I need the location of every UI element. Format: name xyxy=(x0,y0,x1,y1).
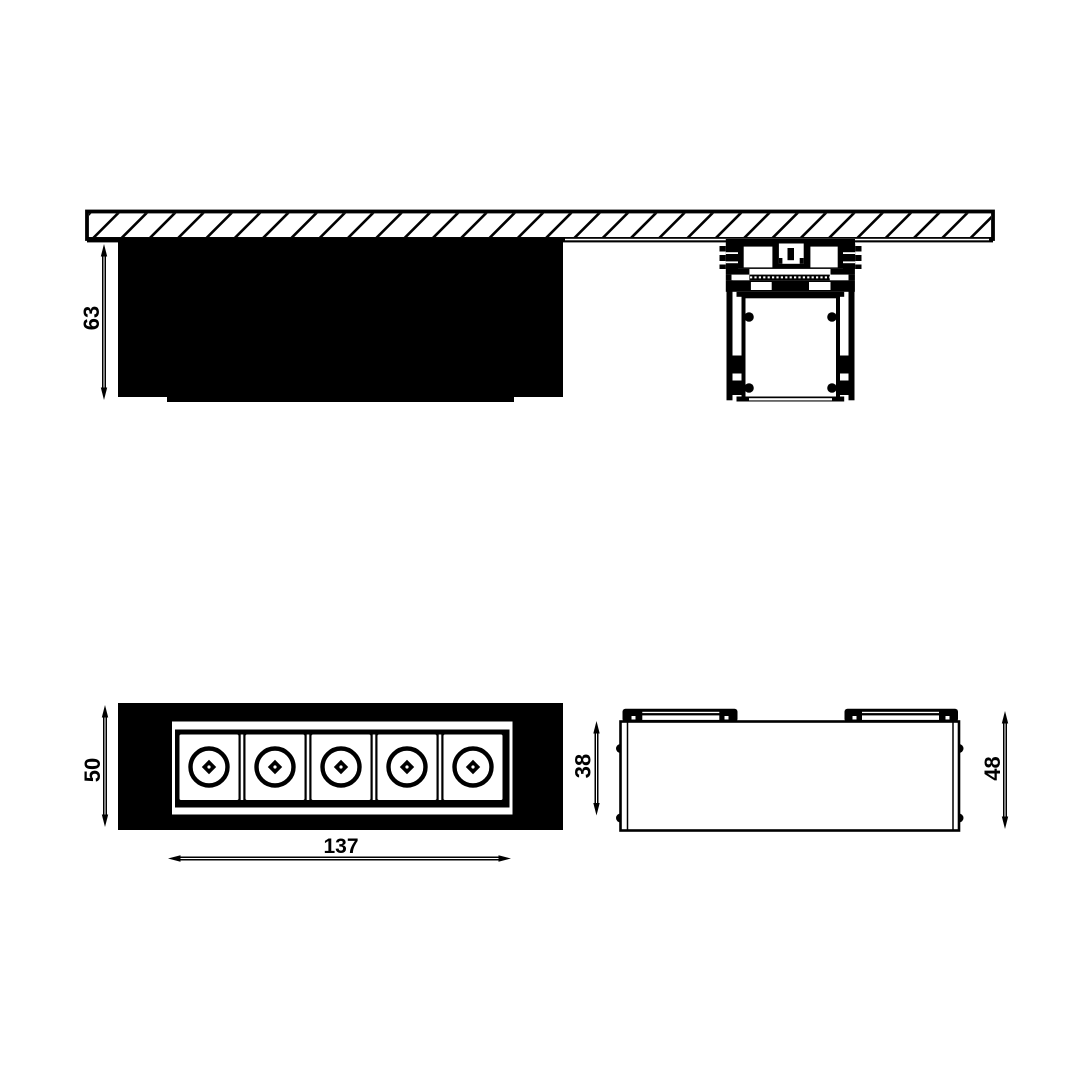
svg-text:38: 38 xyxy=(571,754,596,778)
svg-text:137: 137 xyxy=(323,835,358,858)
svg-text:48: 48 xyxy=(980,756,1005,780)
svg-text:50: 50 xyxy=(80,758,105,782)
svg-text:63: 63 xyxy=(79,306,104,330)
